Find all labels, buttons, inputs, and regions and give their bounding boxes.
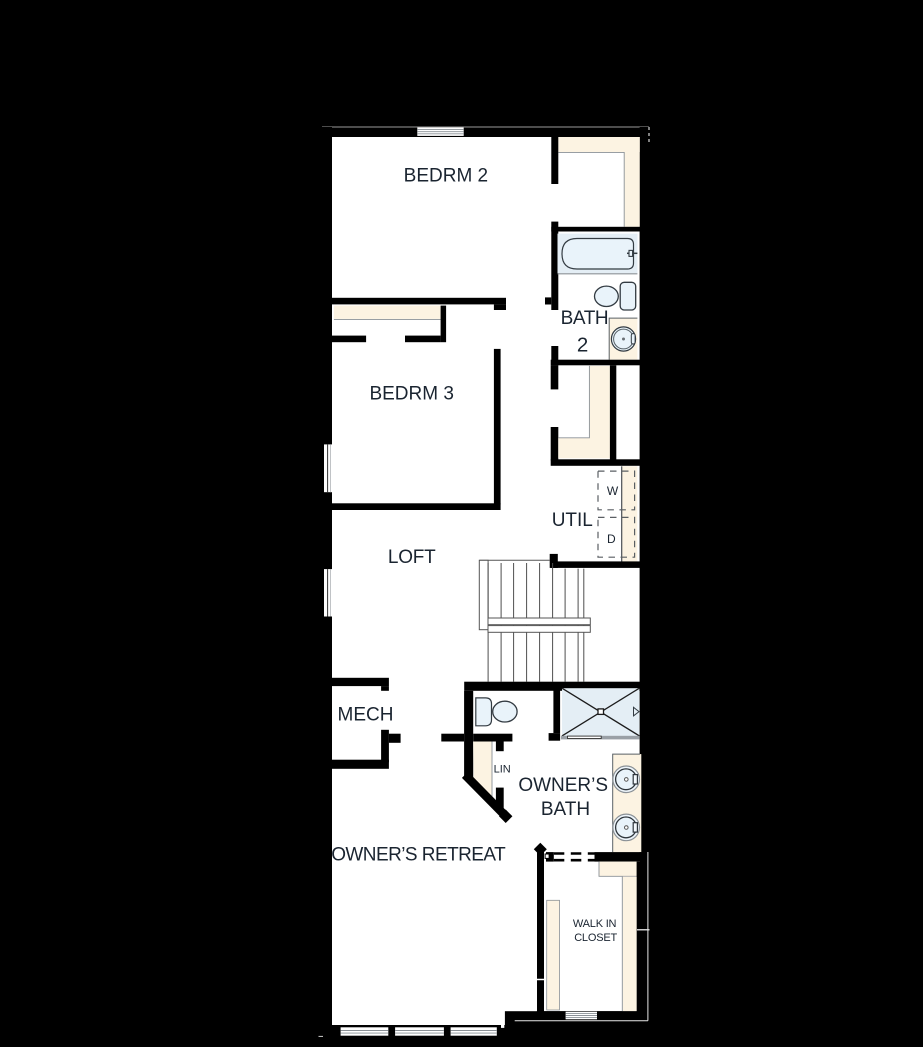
svg-text:D: D <box>607 532 616 546</box>
svg-text:BATH: BATH <box>561 308 609 329</box>
svg-text:W: W <box>607 484 619 498</box>
svg-text:CLOSET: CLOSET <box>574 932 617 944</box>
svg-text:BEDRM 2: BEDRM 2 <box>404 166 488 187</box>
svg-text:OWNER’S: OWNER’S <box>518 775 608 796</box>
svg-text:UTIL: UTIL <box>552 510 593 531</box>
svg-text:WALK IN: WALK IN <box>573 918 617 930</box>
svg-text:BATH: BATH <box>541 799 590 820</box>
svg-text:BEDRM 3: BEDRM 3 <box>369 383 453 404</box>
svg-text:LOFT: LOFT <box>388 547 436 568</box>
svg-text:OWNER’S RETREAT: OWNER’S RETREAT <box>331 845 506 866</box>
svg-text:LIN: LIN <box>494 764 511 776</box>
svg-text:MECH: MECH <box>338 704 394 725</box>
svg-text:2: 2 <box>577 334 588 357</box>
